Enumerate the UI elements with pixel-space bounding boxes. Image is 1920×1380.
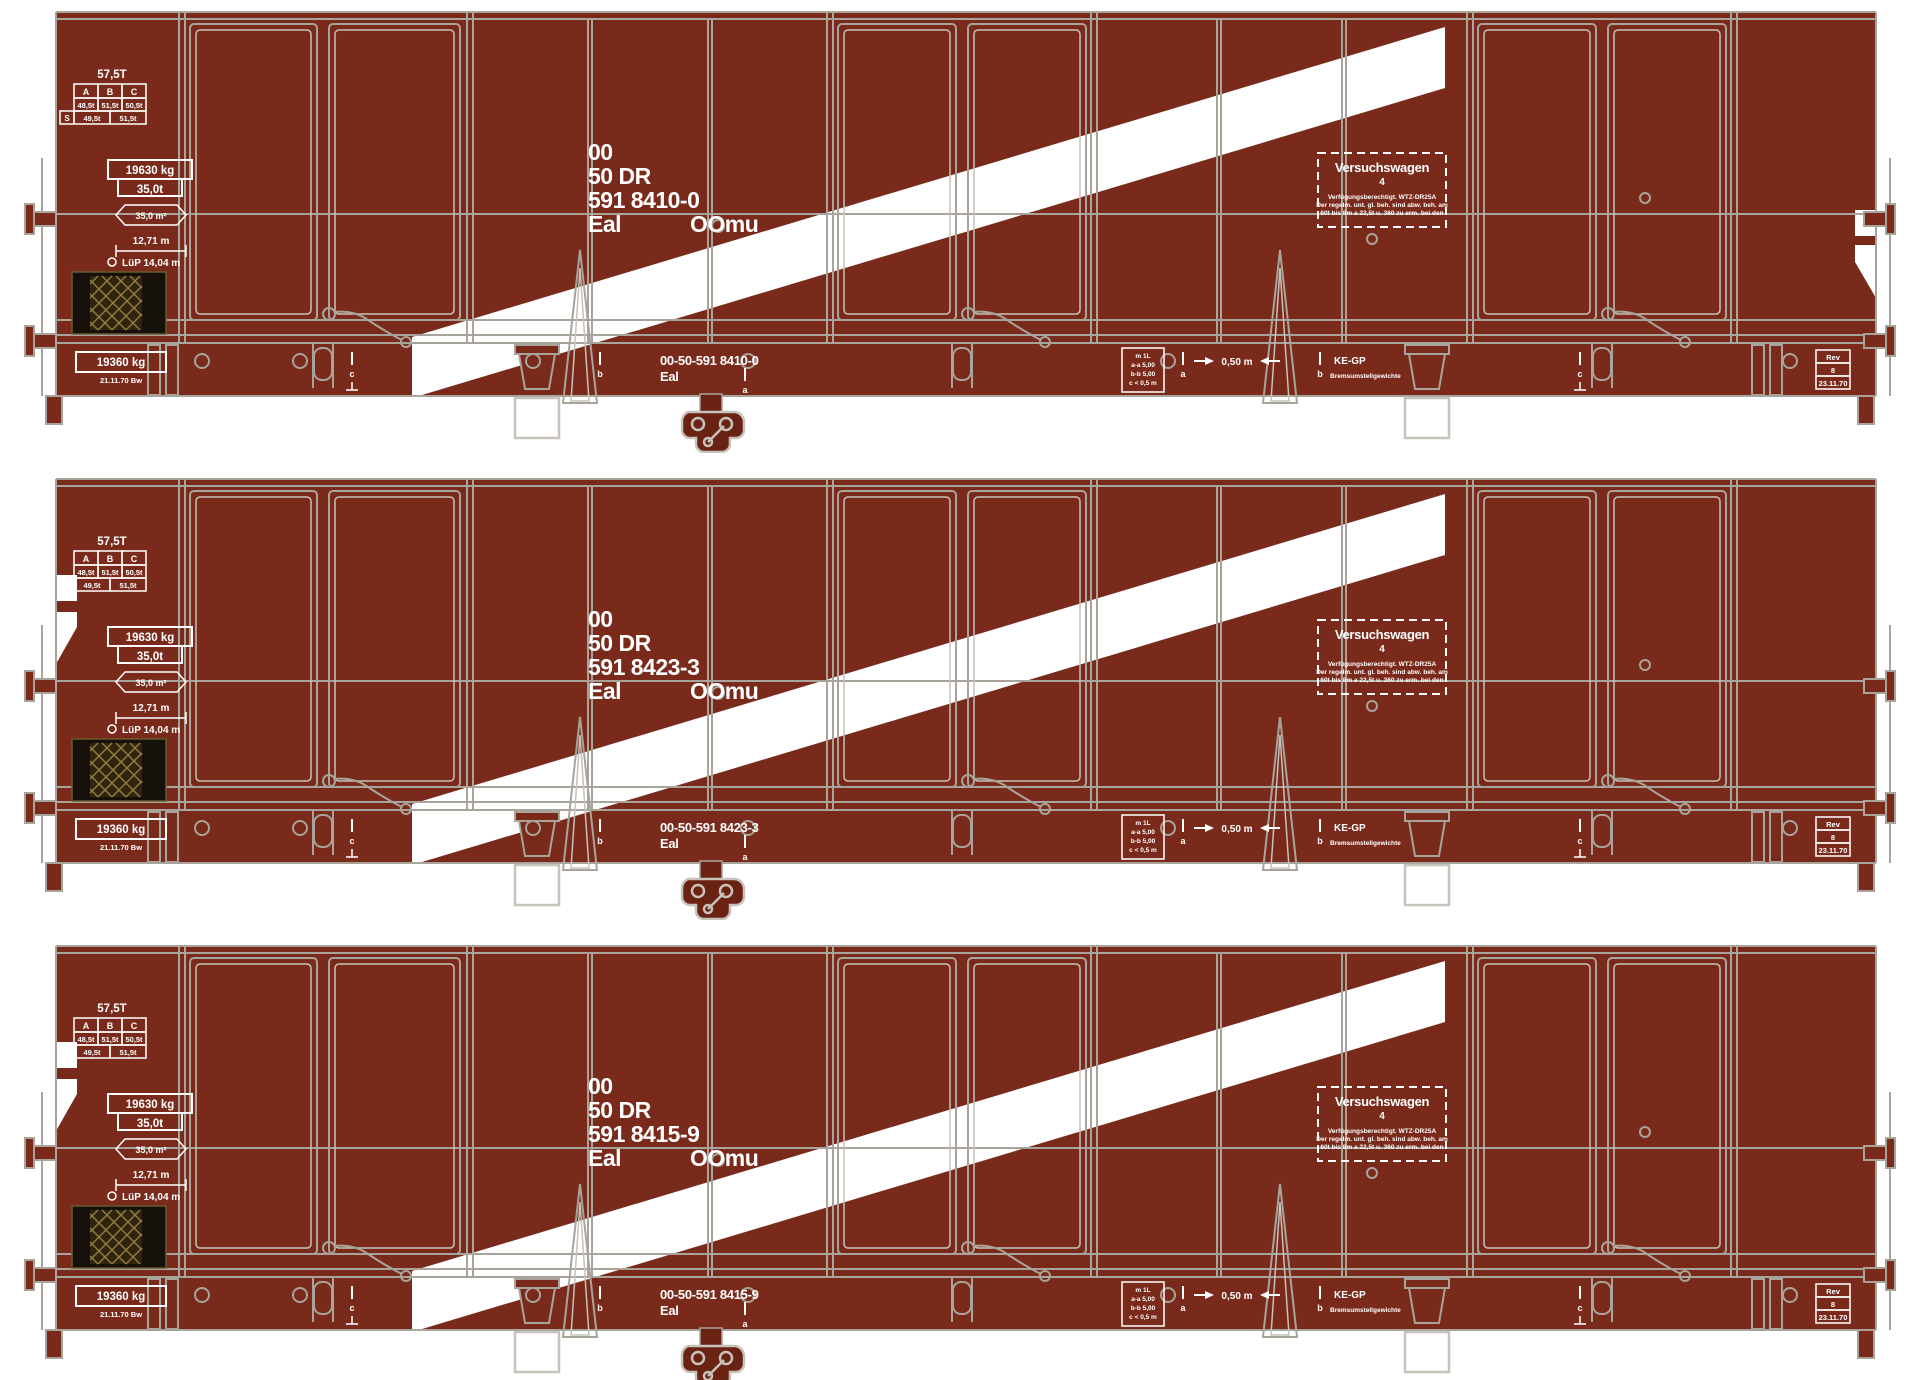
tick-label: c — [349, 836, 354, 846]
axle-row: m 1L — [1135, 820, 1150, 827]
wagon-2: 57,5T A B C 48,5t 51,5t 50,5t S 49,5t 51… — [12, 475, 1908, 920]
tare-date: 21.11.70 Bw — [100, 1310, 142, 1319]
admin-code: 50 DR — [588, 163, 652, 189]
wagon-number: 591 8415-9 — [588, 1121, 699, 1147]
end-hook-left — [46, 396, 62, 424]
payload-top: 19630 kg — [126, 165, 175, 177]
rev-row: 23.11.70 — [1819, 846, 1848, 855]
brake-note: Bremsumstellgewichte — [1330, 373, 1401, 380]
tick-label: b — [1317, 836, 1323, 846]
illustration-canvas: 57,5T A B C 48,5t 51,5t 50,5t S 49,5t 51… — [0, 0, 1920, 1380]
tare-note: 57,5T — [97, 69, 126, 81]
load-table-header: A — [83, 554, 90, 564]
load-table-header: C — [131, 1021, 138, 1031]
frame-number: 00-50-591 8423-3 — [660, 820, 759, 835]
end-hook-right — [1858, 1330, 1874, 1358]
experimental-line: Der regelm. unt. gl. beh. sind abw. beh.… — [1316, 669, 1448, 676]
step-box-right — [1405, 1332, 1449, 1372]
load-table-cell: 50,5t — [125, 101, 143, 110]
experimental-number: 4 — [1379, 177, 1385, 188]
experimental-line: 60t bis 8m a 22,5t u. 360 zu erm. bei de… — [1320, 210, 1443, 217]
rev-row: 8 — [1831, 1300, 1835, 1309]
rev-row: 8 — [1831, 366, 1835, 375]
payload-top: 19630 kg — [126, 1099, 175, 1111]
experimental-title: Versuchswagen — [1335, 627, 1430, 642]
wagon-number: 591 8410-0 — [588, 187, 699, 213]
load-table-cell: 49,5t — [83, 581, 101, 590]
load-table-cell: 51,5t — [119, 1048, 137, 1057]
grille-panel — [72, 1206, 166, 1268]
tare-note: 57,5T — [97, 1003, 126, 1015]
tick-label: c — [349, 369, 354, 379]
axle-row: c < 0,5 m — [1129, 380, 1157, 387]
admin-code: 50 DR — [588, 630, 652, 656]
inner-length: 12,71 m — [133, 703, 170, 714]
tick-label: c — [1577, 836, 1582, 846]
load-table-cell: 50,5t — [125, 1035, 143, 1044]
tick-label: b — [1317, 369, 1323, 379]
type-code: Eal — [588, 678, 621, 704]
end-hook-left — [46, 863, 62, 891]
load-table-s: S — [64, 114, 70, 123]
type-code: Eal — [588, 211, 621, 237]
class-code: OOmu — [690, 1145, 758, 1171]
tick-label: b — [1317, 1303, 1323, 1313]
axle-row: c < 0,5 m — [1129, 1314, 1157, 1321]
payload-bottom: 35,0t — [137, 1118, 163, 1130]
brake-note: Bremsumstellgewichte — [1330, 840, 1401, 847]
tick-label: c — [1577, 1303, 1582, 1313]
rev-row: Rev — [1826, 353, 1841, 362]
axle-row: a-a 5,00 — [1131, 1296, 1155, 1303]
class-code: OOmu — [690, 211, 758, 237]
grille-panel — [72, 739, 166, 801]
tick-label: b — [597, 369, 603, 379]
wagon-illustration: 57,5T A B C 48,5t 51,5t 50,5t S 49,5t 51… — [12, 8, 1908, 453]
experimental-line: Verfügungsberechtigt. WTZ-DR25A — [1328, 661, 1437, 668]
tare-weight: 19360 kg — [97, 357, 146, 369]
load-table-header: B — [107, 554, 114, 564]
experimental-number: 4 — [1379, 1111, 1385, 1122]
frame-number: 00-50-591 8410-0 — [660, 353, 759, 368]
inner-length: 12,71 m — [133, 1170, 170, 1181]
brake-type: KE-GP — [1334, 1290, 1366, 1301]
overall-length-text: LüP 14,04 m — [122, 1192, 180, 1203]
end-hook-right — [1858, 396, 1874, 424]
load-table-header: B — [107, 1021, 114, 1031]
experimental-line: 60t bis 8m a 22,5t u. 360 zu erm. bei de… — [1320, 1144, 1443, 1151]
experimental-line: 60t bis 8m a 22,5t u. 360 zu erm. bei de… — [1320, 677, 1443, 684]
load-table-cell: 48,5t — [77, 568, 95, 577]
overall-length-text: LüP 14,04 m — [122, 725, 180, 736]
admin-code: 50 DR — [588, 1097, 652, 1123]
tick-label: c — [349, 1303, 354, 1313]
load-table-cell: 48,5t — [77, 101, 95, 110]
load-table-header: B — [107, 87, 114, 97]
frame-type: Eal — [660, 1303, 679, 1318]
coupler — [682, 861, 744, 919]
axle-row: b-b 5,00 — [1131, 1305, 1156, 1312]
wagon-illustration: 57,5T A B C 48,5t 51,5t 50,5t S 49,5t 51… — [12, 942, 1908, 1380]
tare-weight: 19360 kg — [97, 824, 146, 836]
frame-type: Eal — [660, 369, 679, 384]
wagon-1: 57,5T A B C 48,5t 51,5t 50,5t S 49,5t 51… — [12, 8, 1908, 453]
step-box-left — [515, 1332, 559, 1372]
tick-label: b — [597, 836, 603, 846]
wagon-illustration: 57,5T A B C 48,5t 51,5t 50,5t S 49,5t 51… — [12, 475, 1908, 920]
wagon-number: 591 8423-3 — [588, 654, 699, 680]
inner-length: 12,71 m — [133, 236, 170, 247]
wagon-3: 57,5T A B C 48,5t 51,5t 50,5t S 49,5t 51… — [12, 942, 1908, 1380]
load-table-s: S — [64, 581, 70, 590]
axle-row: a-a 5,00 — [1131, 362, 1155, 369]
floor-area: 35,0 m² — [135, 211, 166, 221]
load-table-cell: 48,5t — [77, 1035, 95, 1044]
grille-panel — [72, 272, 166, 334]
load-table-cell: 51,5t — [101, 1035, 119, 1044]
load-table-header: C — [131, 554, 138, 564]
frame-number: 00-50-591 8415-9 — [660, 1287, 759, 1302]
axle-row: m 1L — [1135, 353, 1150, 360]
owner-code: 00 — [588, 606, 613, 632]
axle-row: c < 0,5 m — [1129, 847, 1157, 854]
load-table-header: A — [83, 87, 90, 97]
class-code: OOmu — [690, 678, 758, 704]
load-table-header: C — [131, 87, 138, 97]
axle-row: m 1L — [1135, 1287, 1150, 1294]
experimental-line: Der regelm. unt. gl. beh. sind abw. beh.… — [1316, 202, 1448, 209]
experimental-title: Versuchswagen — [1335, 160, 1430, 175]
floor-area: 35,0 m² — [135, 678, 166, 688]
payload-bottom: 35,0t — [137, 651, 163, 663]
type-code: Eal — [588, 1145, 621, 1171]
tare-weight: 19360 kg — [97, 1291, 146, 1303]
load-table-cell: 51,5t — [101, 568, 119, 577]
gauge-text: 0,50 m — [1221, 824, 1252, 835]
load-table-cell: 49,5t — [83, 114, 101, 123]
end-hook-left — [46, 1330, 62, 1358]
brake-note: Bremsumstellgewichte — [1330, 1307, 1401, 1314]
rev-row: Rev — [1826, 1287, 1841, 1296]
load-table-header: A — [83, 1021, 90, 1031]
payload-bottom: 35,0t — [137, 184, 163, 196]
axle-row: b-b 5,00 — [1131, 371, 1156, 378]
rev-row: Rev — [1826, 820, 1841, 829]
coupler — [682, 1328, 744, 1380]
floor-area: 35,0 m² — [135, 1145, 166, 1155]
rev-row: 23.11.70 — [1819, 1313, 1848, 1322]
payload-top: 19630 kg — [126, 632, 175, 644]
step-box-left — [515, 865, 559, 905]
rev-row: 8 — [1831, 833, 1835, 842]
step-box-left — [515, 398, 559, 438]
coupler — [682, 394, 744, 452]
tare-date: 21.11.70 Bw — [100, 376, 142, 385]
brake-type: KE-GP — [1334, 356, 1366, 367]
experimental-line: Verfügungsberechtigt. WTZ-DR25A — [1328, 194, 1437, 201]
overall-length-text: LüP 14,04 m — [122, 258, 180, 269]
load-table-s: S — [64, 1048, 70, 1057]
tick-label: b — [597, 1303, 603, 1313]
load-table-cell: 51,5t — [119, 114, 137, 123]
end-hook-right — [1858, 863, 1874, 891]
load-table-cell: 50,5t — [125, 568, 143, 577]
experimental-line: Der regelm. unt. gl. beh. sind abw. beh.… — [1316, 1136, 1448, 1143]
owner-code: 00 — [588, 139, 613, 165]
tare-date: 21.11.70 Bw — [100, 843, 142, 852]
experimental-number: 4 — [1379, 644, 1385, 655]
brake-type: KE-GP — [1334, 823, 1366, 834]
gauge-text: 0,50 m — [1221, 1291, 1252, 1302]
axle-row: b-b 5,00 — [1131, 838, 1156, 845]
axle-row: a-a 5,00 — [1131, 829, 1155, 836]
tick-label: c — [1577, 369, 1582, 379]
load-table-cell: 51,5t — [119, 581, 137, 590]
load-table-cell: 51,5t — [101, 101, 119, 110]
load-table-cell: 49,5t — [83, 1048, 101, 1057]
frame-type: Eal — [660, 836, 679, 851]
tare-note: 57,5T — [97, 536, 126, 548]
gauge-text: 0,50 m — [1221, 357, 1252, 368]
experimental-title: Versuchswagen — [1335, 1094, 1430, 1109]
experimental-line: Verfügungsberechtigt. WTZ-DR25A — [1328, 1128, 1437, 1135]
step-box-right — [1405, 865, 1449, 905]
rev-row: 23.11.70 — [1819, 379, 1848, 388]
step-box-right — [1405, 398, 1449, 438]
owner-code: 00 — [588, 1073, 613, 1099]
